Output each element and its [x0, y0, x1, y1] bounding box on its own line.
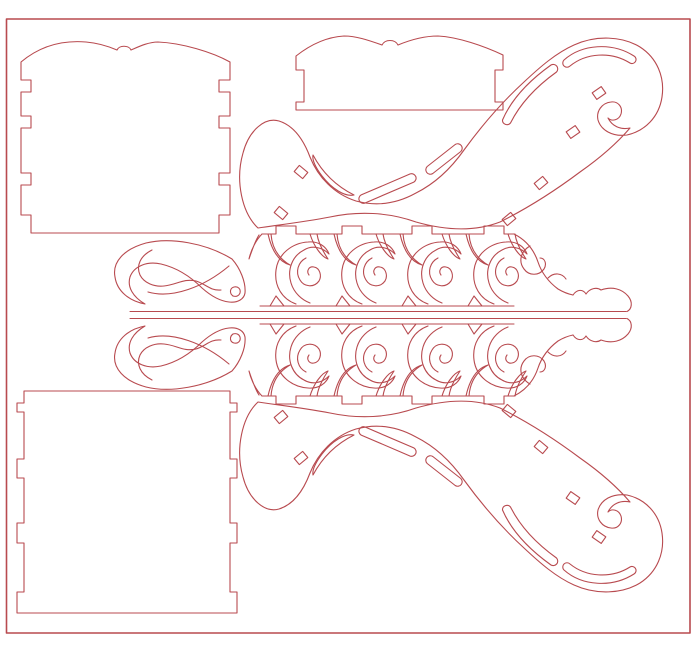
panel-outline	[21, 42, 230, 233]
runner-volute-slot	[563, 47, 636, 68]
runner-hole-3	[592, 87, 606, 100]
laser-cut-sheet	[0, 0, 700, 668]
apron-top-edge-with-tabs	[262, 226, 514, 234]
apron-right-small-scroll	[548, 274, 566, 279]
apron-left-leaf	[249, 234, 262, 259]
scroll-c-1	[276, 242, 329, 304]
runner-outline	[240, 38, 663, 229]
left-wing-outline	[115, 241, 246, 304]
scroll-spiral-2	[364, 258, 387, 286]
scroll-spiral-4	[496, 258, 519, 286]
front-panel-scalloped	[296, 36, 503, 110]
scroll-c-3	[408, 242, 461, 304]
sleigh-laser-cut-template	[0, 0, 700, 668]
box-panel-plain	[17, 391, 237, 613]
runner-hole-5	[534, 176, 548, 189]
runner-hole-1	[294, 165, 308, 178]
left-wing-curl	[230, 287, 240, 297]
panel-outline	[296, 36, 503, 110]
scroll-spiral-1	[298, 258, 321, 286]
panel-outline	[17, 391, 237, 613]
runner-slot-a	[359, 174, 416, 204]
runner-hole-4	[566, 126, 580, 139]
scroll-leaf-1	[310, 234, 328, 259]
runner-hole-2	[274, 206, 288, 219]
apron-right-taper-edge	[514, 234, 573, 295]
apron-feet	[270, 296, 482, 306]
scroll-leaf-4	[508, 234, 526, 259]
mirrored-runner-and-apron	[115, 319, 663, 592]
scroll-spiral-3	[430, 258, 453, 286]
scroll-c-2	[342, 242, 395, 304]
apron-tail-bone-end	[573, 288, 631, 311]
bottom-half-mirrored	[115, 319, 663, 592]
back-panel-scalloped	[21, 42, 230, 233]
left-wing-inner-line	[139, 250, 222, 290]
scroll-leaf-2	[376, 234, 394, 259]
top-half	[115, 38, 663, 311]
scroll-leaf-3	[442, 234, 460, 259]
scroll-c-4	[474, 242, 527, 304]
